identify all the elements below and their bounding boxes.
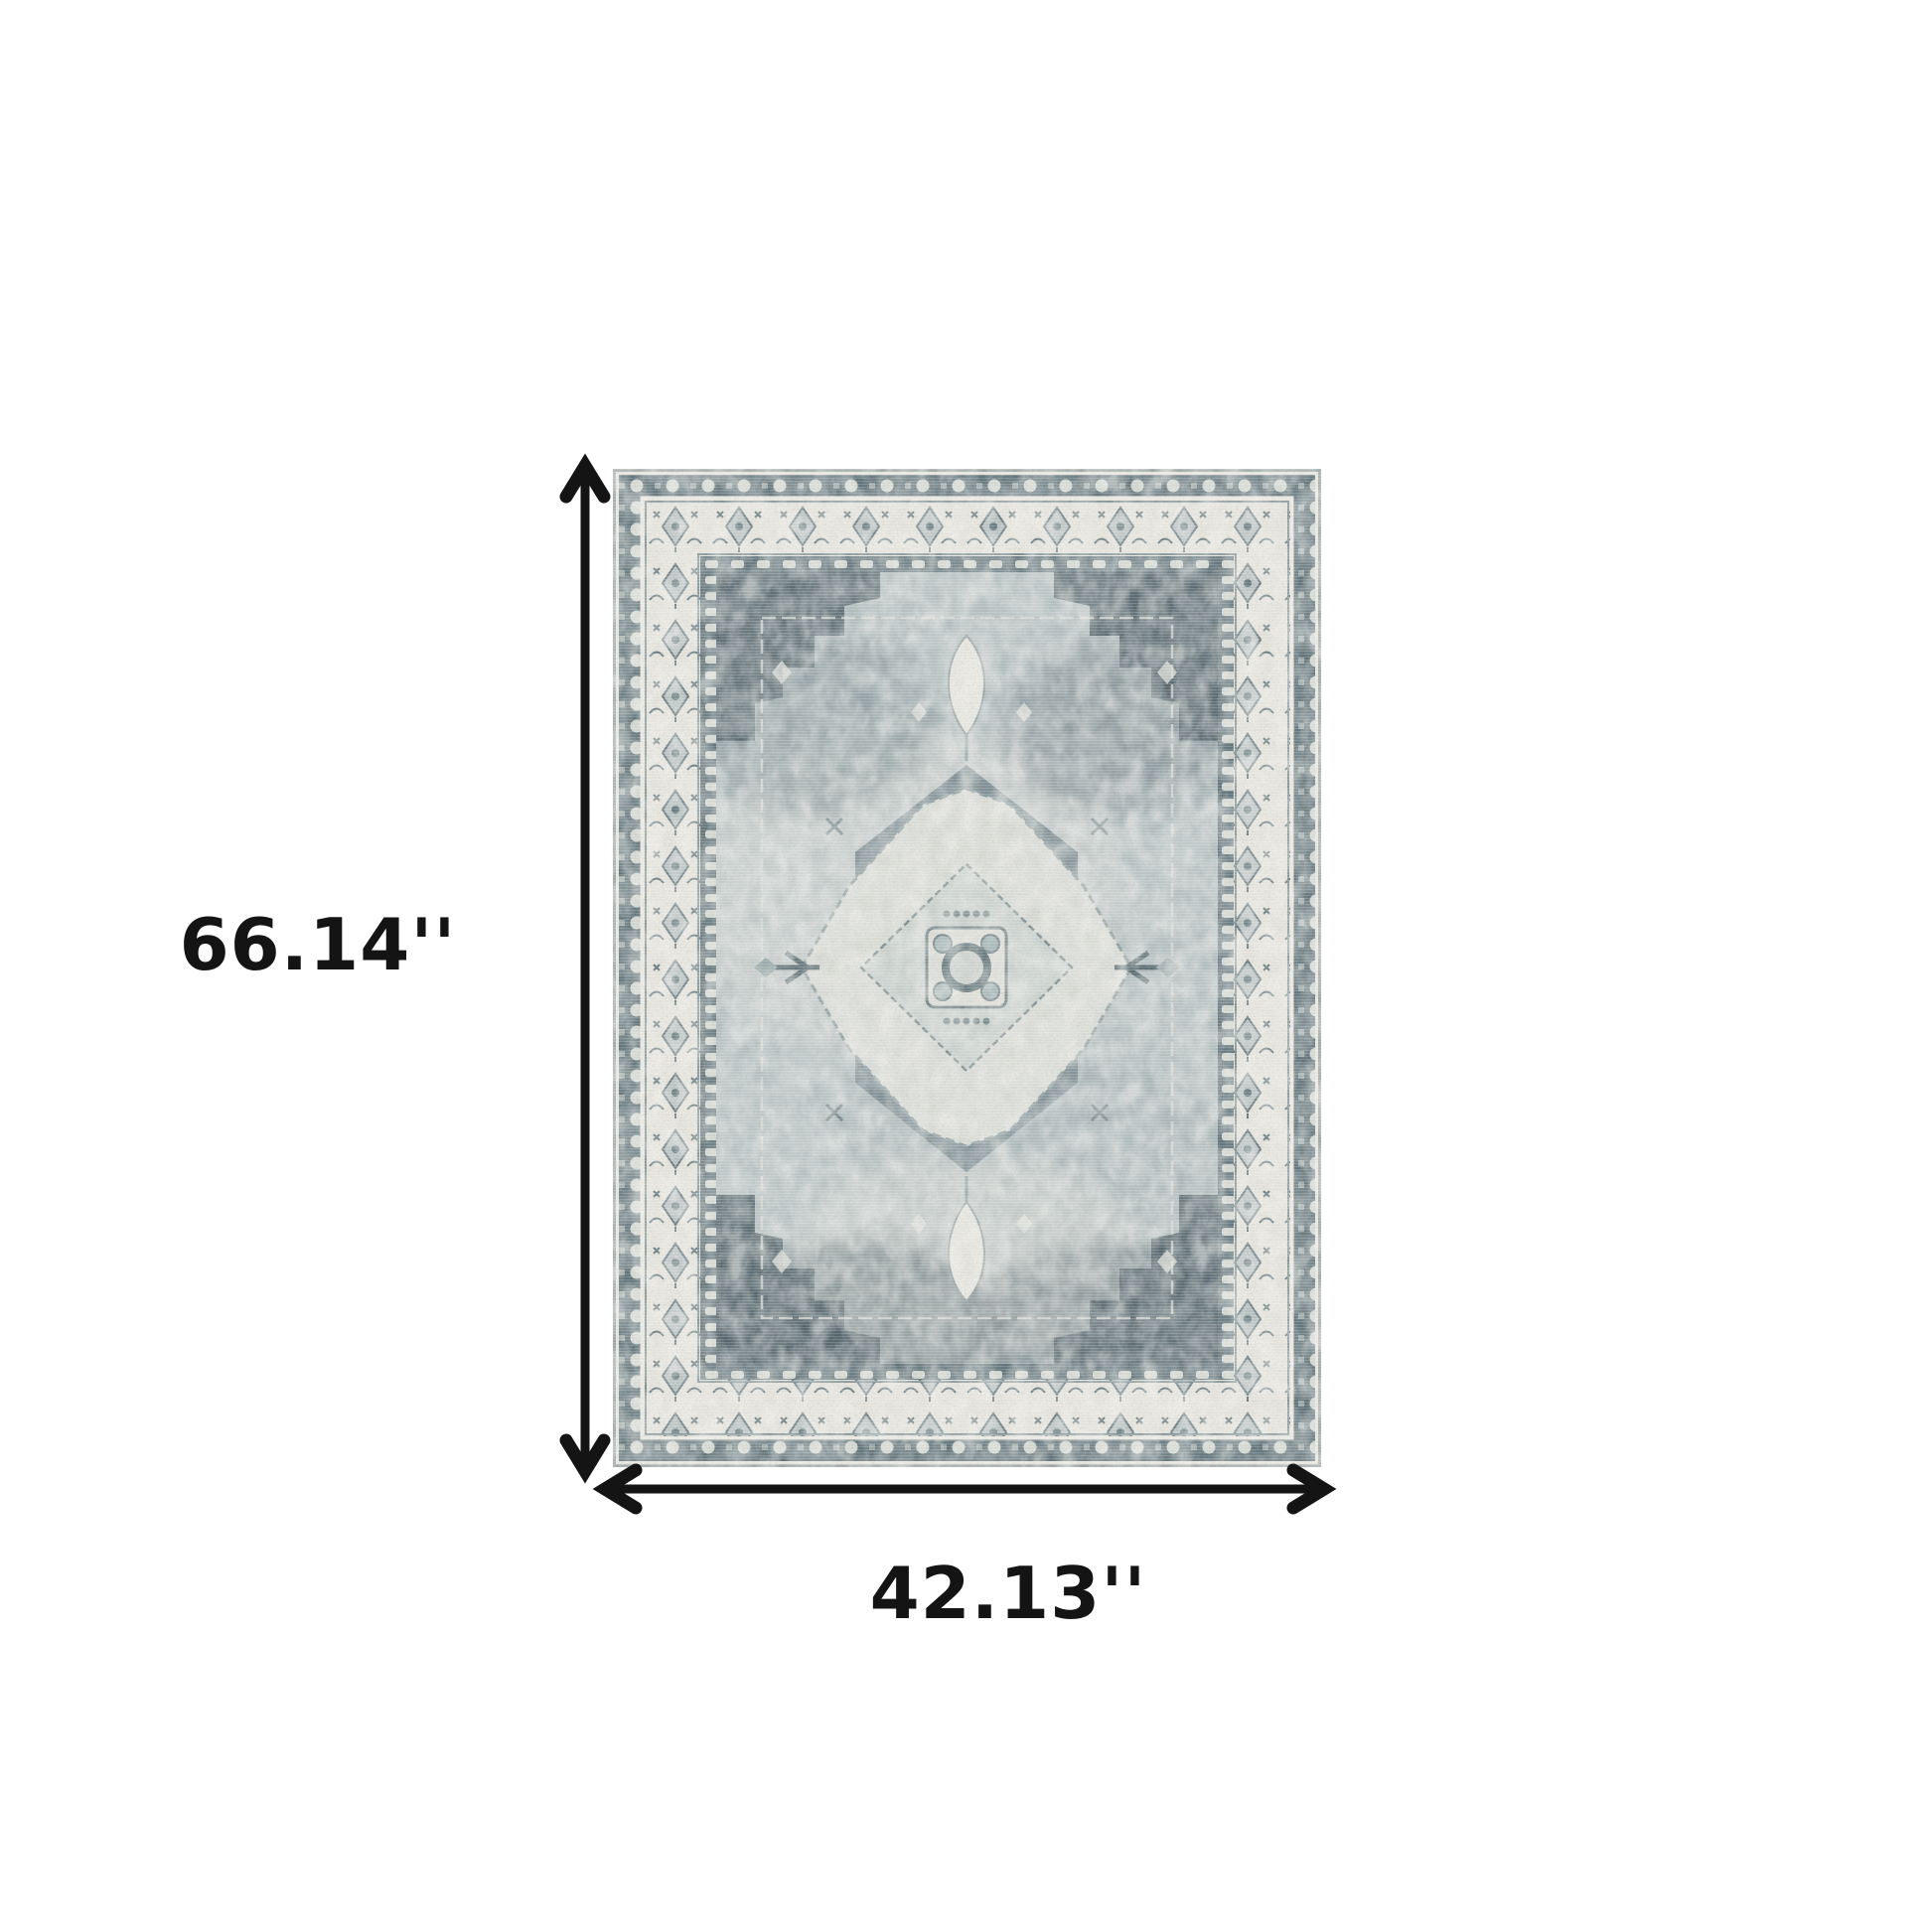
rug-image [613,469,1321,1467]
width-arrow-icon [591,1456,1338,1522]
height-arrow-icon [552,452,618,1485]
product-dimension-diagram: 66.14'' 42.13'' [0,0,1932,1932]
height-dimension-label: 66.14'' [180,903,457,986]
width-dimension-label: 42.13'' [870,1552,1147,1635]
